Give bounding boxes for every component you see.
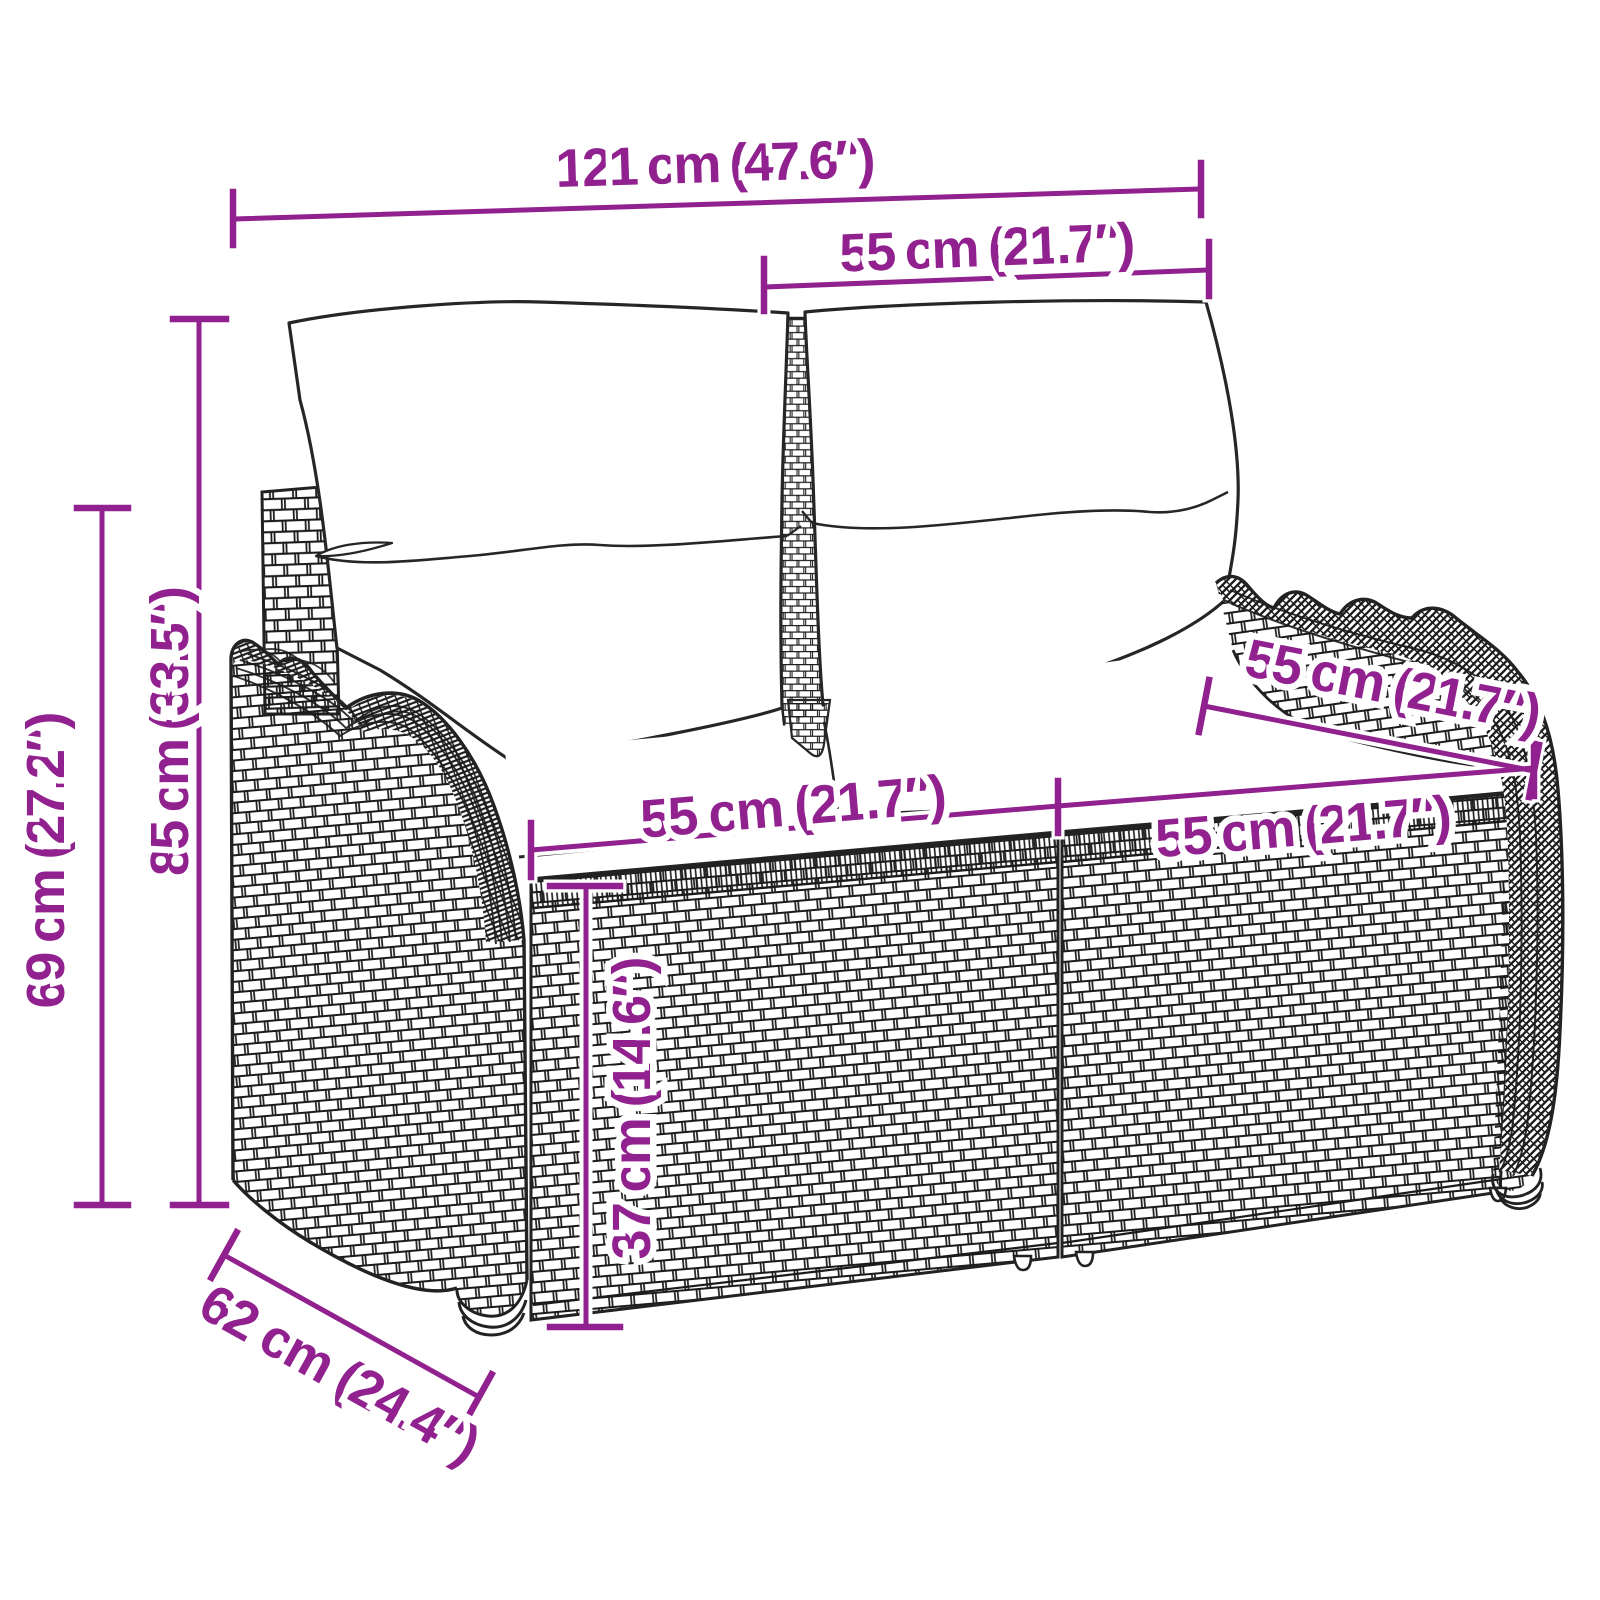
svg-text:121 cm (47.6″): 121 cm (47.6″) xyxy=(555,129,877,199)
svg-text:55 cm (21.7″): 55 cm (21.7″) xyxy=(838,212,1136,283)
svg-text:85 cm (33.5″): 85 cm (33.5″) xyxy=(140,586,200,876)
svg-text:37 cm (14.6″): 37 cm (14.6″) xyxy=(602,957,662,1260)
svg-text:69 cm (27.2″): 69 cm (27.2″) xyxy=(16,712,76,1009)
